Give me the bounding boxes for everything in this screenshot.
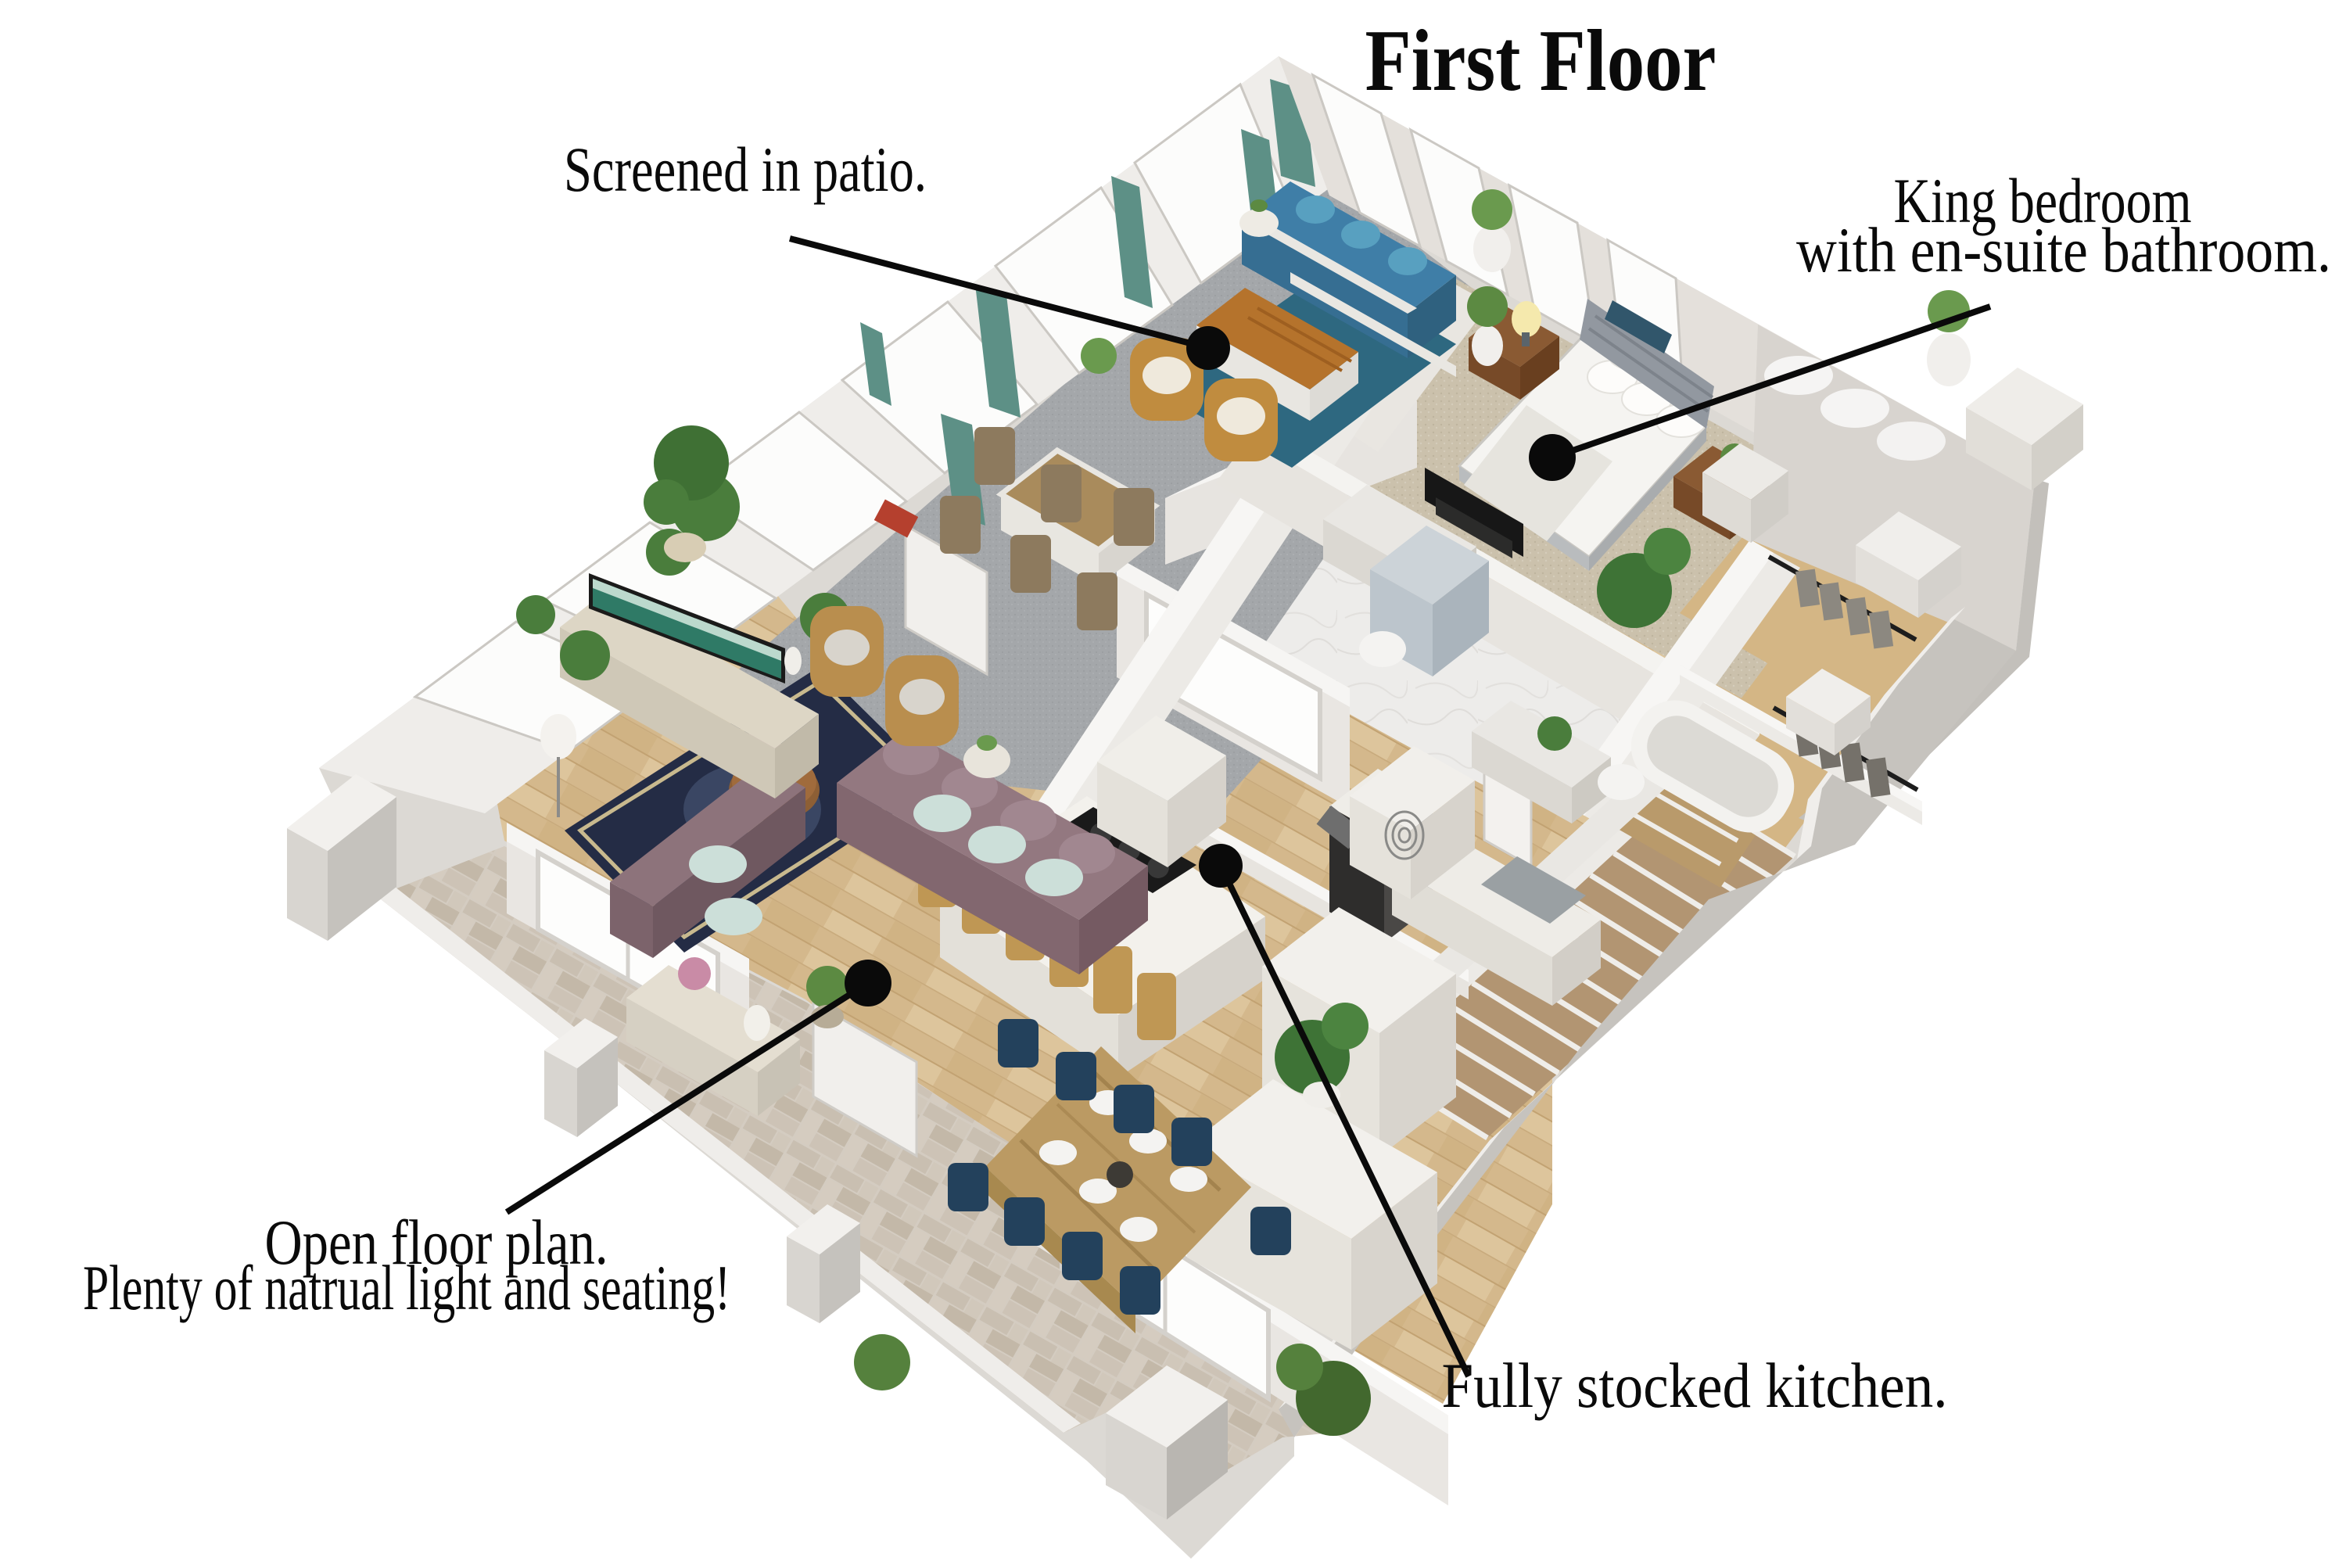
svg-text:with en-suite bathroom.: with en-suite bathroom. — [1796, 214, 2331, 285]
svg-text:Fully stocked kitchen.: Fully stocked kitchen. — [1442, 1350, 1948, 1421]
svg-text:Screened in patio.: Screened in patio. — [564, 134, 927, 205]
svg-text:Plenty of natrual light and se: Plenty of natrual light and seating! — [83, 1252, 730, 1323]
svg-text:First Floor: First Floor — [1365, 13, 1716, 109]
